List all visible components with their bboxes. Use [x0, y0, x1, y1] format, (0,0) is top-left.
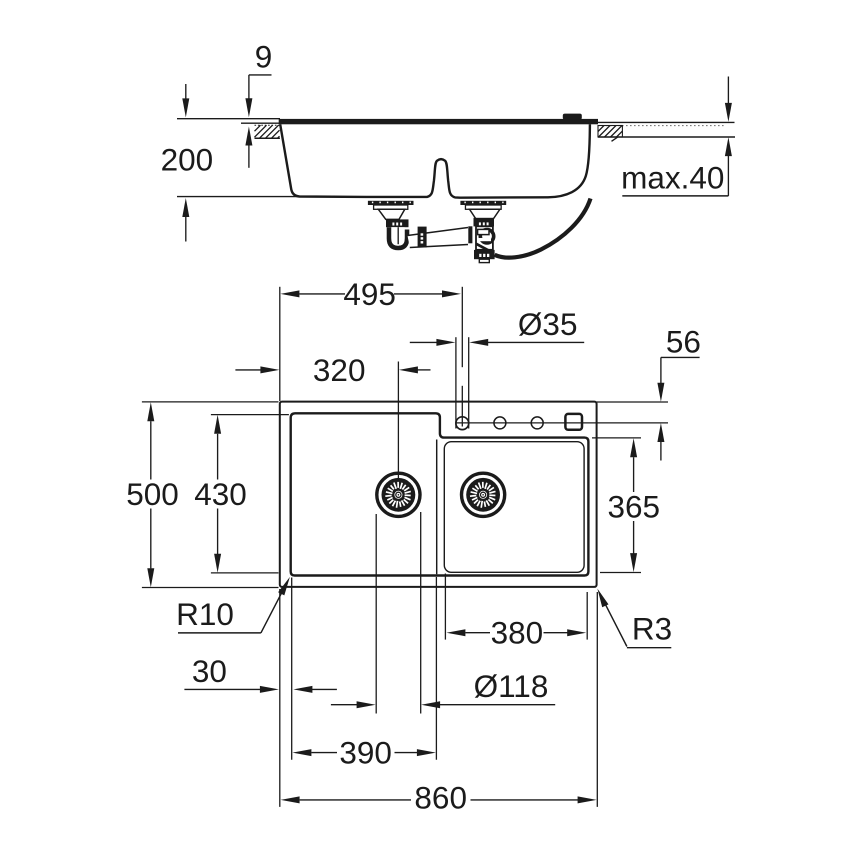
- svg-text:430: 430: [194, 476, 247, 512]
- svg-text:9: 9: [255, 38, 273, 74]
- svg-text:390: 390: [339, 735, 392, 771]
- svg-text:56: 56: [666, 324, 701, 360]
- svg-text:max.40: max.40: [621, 160, 724, 196]
- svg-text:500: 500: [126, 476, 179, 512]
- svg-text:Ø118: Ø118: [474, 668, 549, 704]
- svg-text:380: 380: [491, 615, 544, 651]
- svg-text:R10: R10: [176, 596, 234, 632]
- svg-text:30: 30: [192, 653, 227, 689]
- svg-text:320: 320: [313, 352, 366, 388]
- svg-text:200: 200: [161, 141, 214, 177]
- svg-text:R3: R3: [632, 611, 672, 647]
- svg-text:860: 860: [414, 780, 467, 816]
- svg-text:Ø35: Ø35: [518, 306, 578, 342]
- svg-text:495: 495: [343, 276, 396, 312]
- svg-text:365: 365: [608, 489, 661, 525]
